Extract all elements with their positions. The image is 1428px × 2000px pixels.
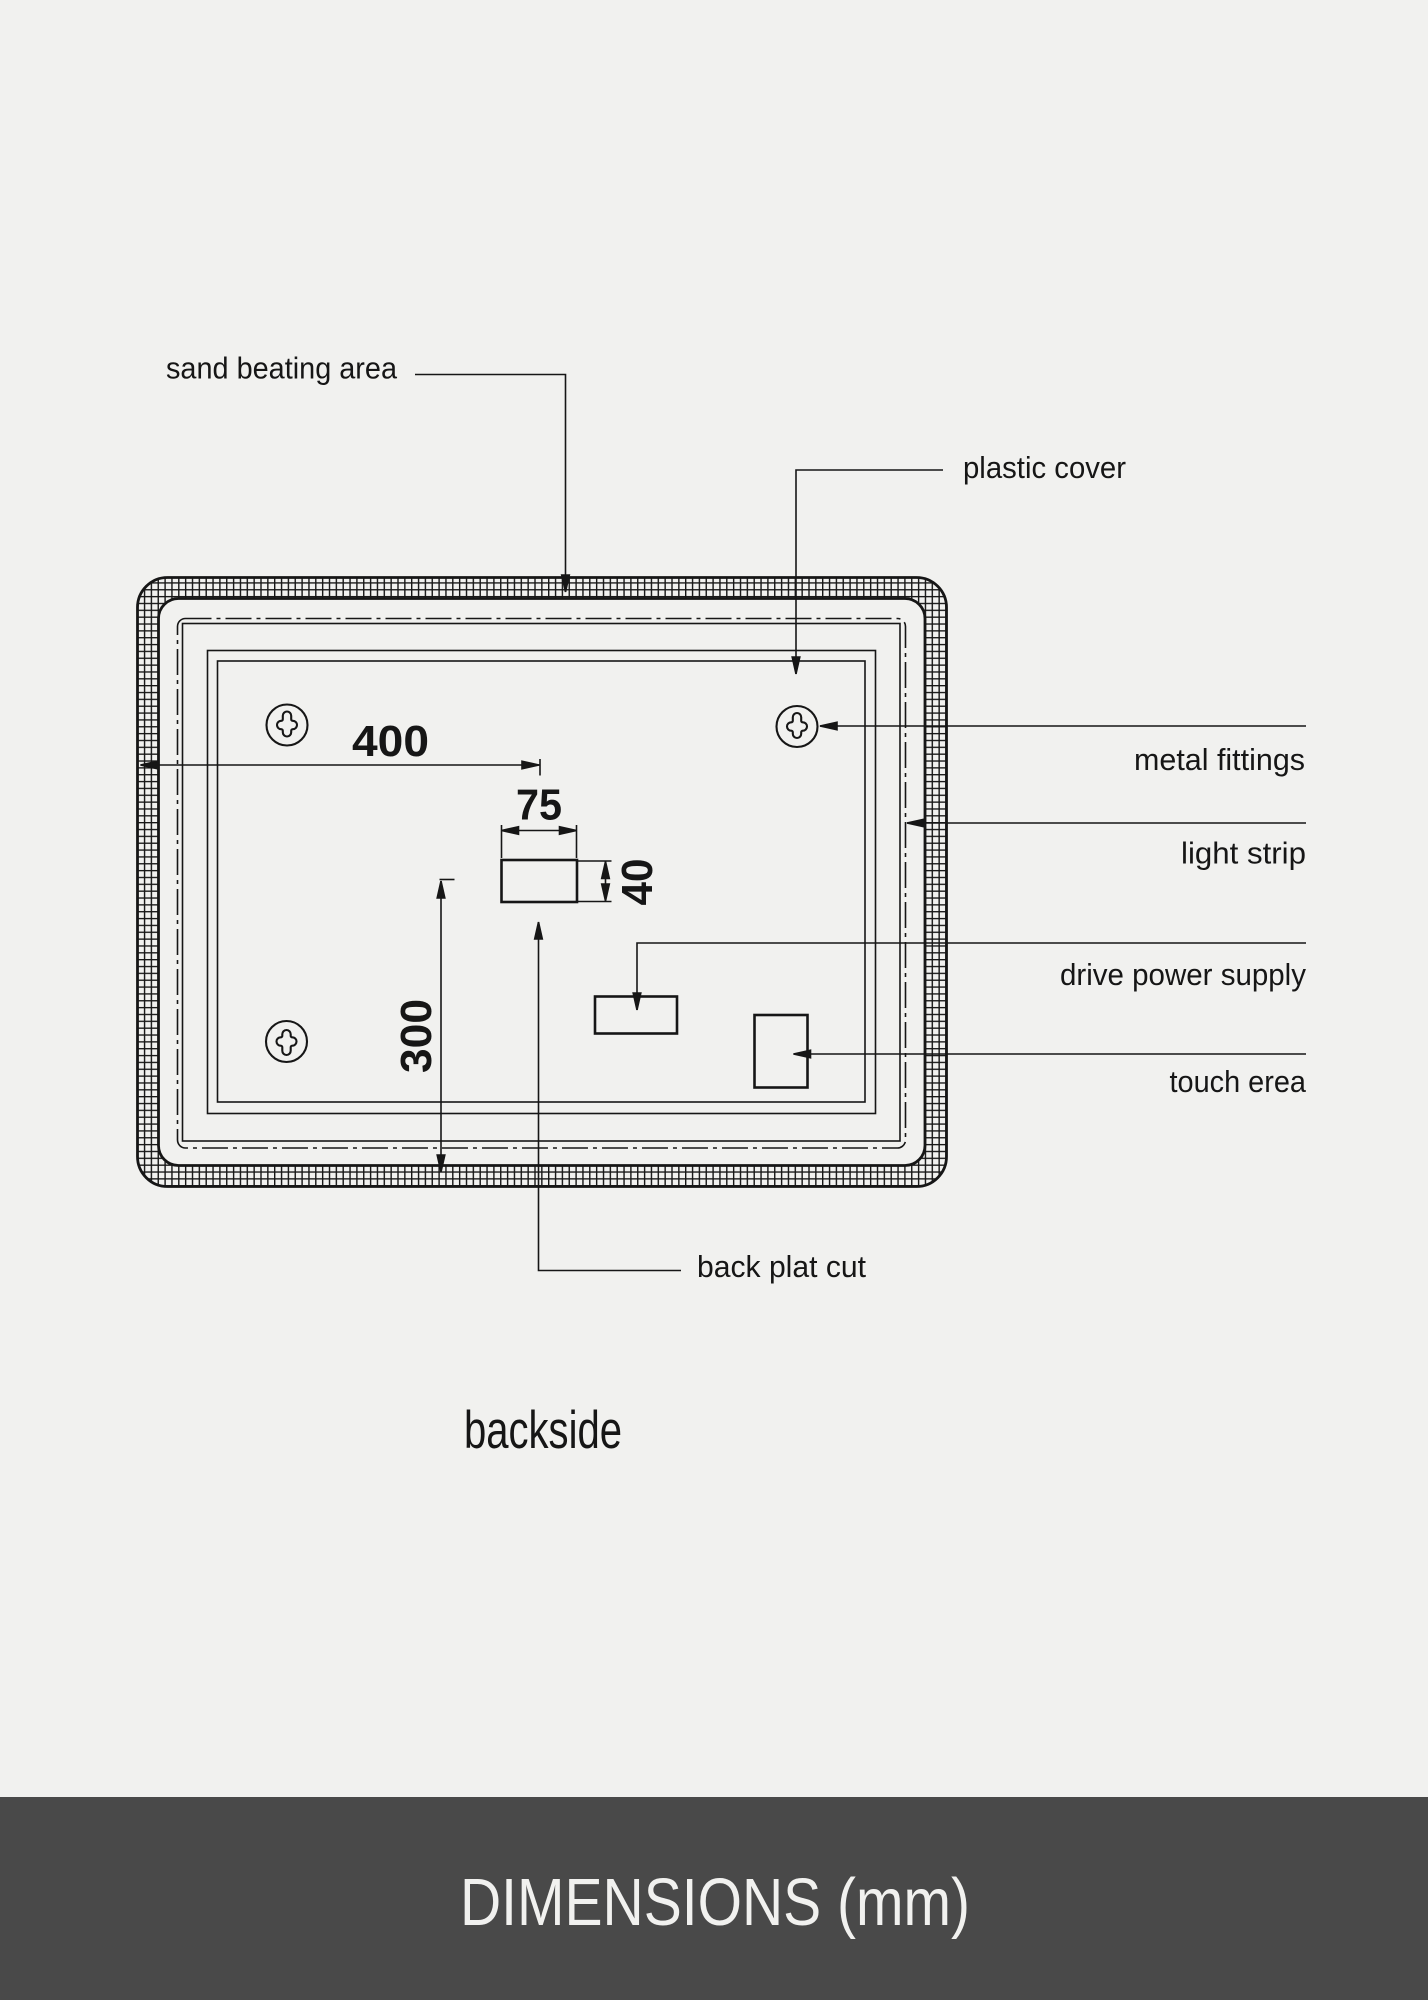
svg-text:drive power supply: drive power supply [1060, 957, 1306, 992]
svg-text:back plat cut: back plat cut [697, 1249, 866, 1284]
svg-text:400: 400 [352, 718, 429, 766]
svg-text:backside: backside [464, 1401, 622, 1460]
svg-text:touch erea: touch erea [1170, 1064, 1307, 1099]
svg-text:sand beating area: sand beating area [166, 351, 398, 386]
svg-text:300: 300 [393, 999, 441, 1073]
svg-text:75: 75 [516, 782, 562, 830]
svg-text:metal fittings: metal fittings [1134, 742, 1305, 777]
svg-text:40: 40 [614, 859, 662, 906]
svg-text:DIMENSIONS (mm): DIMENSIONS (mm) [460, 1865, 970, 1940]
svg-text:light strip: light strip [1181, 836, 1306, 871]
svg-text:plastic cover: plastic cover [963, 450, 1126, 485]
